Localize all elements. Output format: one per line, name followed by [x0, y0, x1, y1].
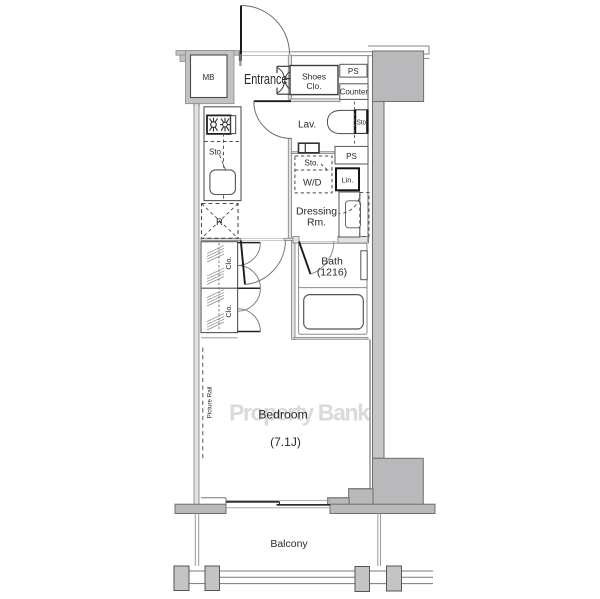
svg-text:Clo.: Clo.: [306, 81, 321, 91]
svg-text:PS: PS: [346, 152, 357, 161]
svg-text:Balcony: Balcony: [270, 538, 308, 550]
svg-text:Counter: Counter: [340, 88, 369, 97]
svg-text:Dressing: Dressing: [296, 207, 337, 218]
svg-text:Shoes: Shoes: [302, 72, 326, 82]
svg-text:Lav.: Lav.: [298, 120, 316, 131]
svg-text:Clo.: Clo.: [224, 256, 233, 269]
svg-text:W/D: W/D: [303, 177, 322, 188]
svg-text:R: R: [216, 217, 223, 228]
svg-text:Sto.: Sto.: [209, 148, 223, 157]
svg-text:Sto: Sto: [357, 119, 367, 126]
svg-text:Picture Rail: Picture Rail: [207, 387, 214, 419]
svg-text:Rm.: Rm.: [307, 218, 326, 229]
svg-text:Entrance: Entrance: [244, 70, 287, 87]
svg-text:(1216): (1216): [317, 267, 347, 279]
svg-text:Bedroom: Bedroom: [258, 408, 307, 422]
svg-text:Sto.: Sto.: [305, 159, 319, 168]
svg-text:Clo.: Clo.: [224, 304, 233, 317]
svg-text:PS: PS: [348, 67, 359, 76]
svg-text:MB: MB: [203, 73, 215, 82]
svg-text:(7.1J): (7.1J): [270, 435, 301, 449]
svg-text:Lin.: Lin.: [341, 175, 353, 184]
